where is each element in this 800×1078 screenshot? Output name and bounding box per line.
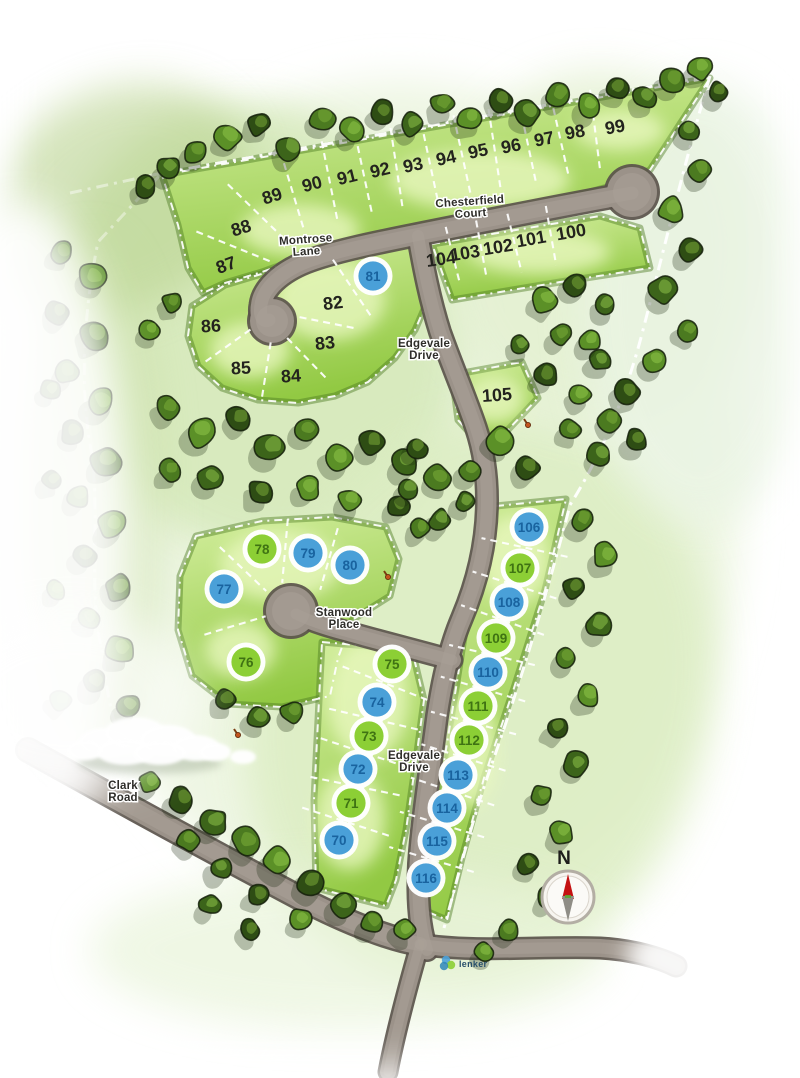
lot-number-104: 104	[425, 247, 458, 271]
lot-number-96: 96	[499, 134, 522, 157]
logo-text: lenker	[459, 959, 488, 969]
lot-marker-79[interactable]: 79	[289, 534, 328, 573]
svg-text:81: 81	[365, 269, 381, 284]
lot-number-85: 85	[230, 357, 251, 378]
lot-number-94: 94	[434, 146, 458, 170]
lot-marker-115[interactable]: 115	[418, 822, 457, 861]
svg-text:110: 110	[477, 665, 499, 680]
lot-marker-74[interactable]: 74	[358, 683, 397, 722]
lot-number-95: 95	[466, 139, 490, 163]
lot-marker-73[interactable]: 73	[350, 717, 389, 756]
logo-mark-teal	[440, 962, 448, 970]
lot-number-93: 93	[401, 153, 425, 177]
lot-marker-81[interactable]: 81	[354, 257, 393, 296]
lot-marker-77[interactable]: 77	[205, 570, 244, 609]
svg-text:78: 78	[254, 542, 270, 557]
lot-number-84: 84	[280, 365, 301, 386]
lot-marker-111[interactable]: 111	[459, 687, 498, 726]
lot-marker-116[interactable]: 116	[407, 859, 446, 898]
site-plan-map: ChesterfieldCourtMontroseLaneEdgevaleDri…	[0, 0, 800, 1078]
lot-marker-114[interactable]: 114	[428, 789, 467, 828]
svg-text:72: 72	[350, 762, 365, 777]
lot-number-86: 86	[200, 315, 221, 336]
lot-number-99: 99	[603, 115, 626, 138]
svg-text:111: 111	[467, 699, 489, 714]
lot-number-82: 82	[322, 292, 344, 314]
svg-text:115: 115	[426, 834, 448, 849]
lot-marker-80[interactable]: 80	[331, 546, 370, 585]
svg-text:70: 70	[331, 833, 346, 848]
svg-text:106: 106	[518, 520, 541, 535]
lot-number-105: 105	[481, 384, 512, 406]
compass-center-mark	[565, 895, 571, 898]
svg-text:107: 107	[509, 561, 532, 576]
svg-text:108: 108	[498, 595, 521, 610]
compass-north-label: N	[557, 848, 571, 869]
lot-marker-71[interactable]: 71	[332, 784, 371, 823]
lot-number-98: 98	[563, 120, 586, 143]
lot-marker-76[interactable]: 76	[227, 643, 266, 682]
lot-marker-112[interactable]: 112	[450, 721, 489, 760]
svg-text:112: 112	[458, 733, 480, 748]
lot-marker-72[interactable]: 72	[339, 750, 378, 789]
lot-marker-78[interactable]: 78	[243, 530, 282, 569]
lot-marker-70[interactable]: 70	[320, 821, 359, 860]
svg-text:80: 80	[342, 558, 357, 573]
svg-text:109: 109	[485, 631, 508, 646]
lot-marker-75[interactable]: 75	[373, 645, 412, 684]
lot-marker-110[interactable]: 110	[469, 653, 508, 692]
svg-text:75: 75	[384, 657, 400, 672]
lot-marker-106[interactable]: 106	[510, 508, 549, 547]
svg-text:74: 74	[369, 695, 385, 710]
street-label-clark-road: ClarkRoad	[108, 780, 138, 804]
svg-text:71: 71	[343, 796, 359, 811]
svg-text:116: 116	[415, 871, 437, 886]
site-plan-page: ChesterfieldCourtMontroseLaneEdgevaleDri…	[0, 0, 800, 1078]
lot-marker-109[interactable]: 109	[477, 619, 516, 658]
svg-text:76: 76	[238, 655, 254, 670]
svg-text:79: 79	[300, 546, 315, 561]
lot-marker-108[interactable]: 108	[490, 583, 529, 622]
lot-number-83: 83	[314, 332, 336, 354]
svg-text:114: 114	[436, 801, 458, 816]
svg-text:77: 77	[216, 582, 231, 597]
svg-text:113: 113	[447, 768, 469, 783]
svg-text:73: 73	[361, 729, 377, 744]
lot-marker-113[interactable]: 113	[439, 756, 478, 795]
lot-marker-107[interactable]: 107	[501, 549, 540, 588]
lot-number-97: 97	[532, 127, 555, 150]
